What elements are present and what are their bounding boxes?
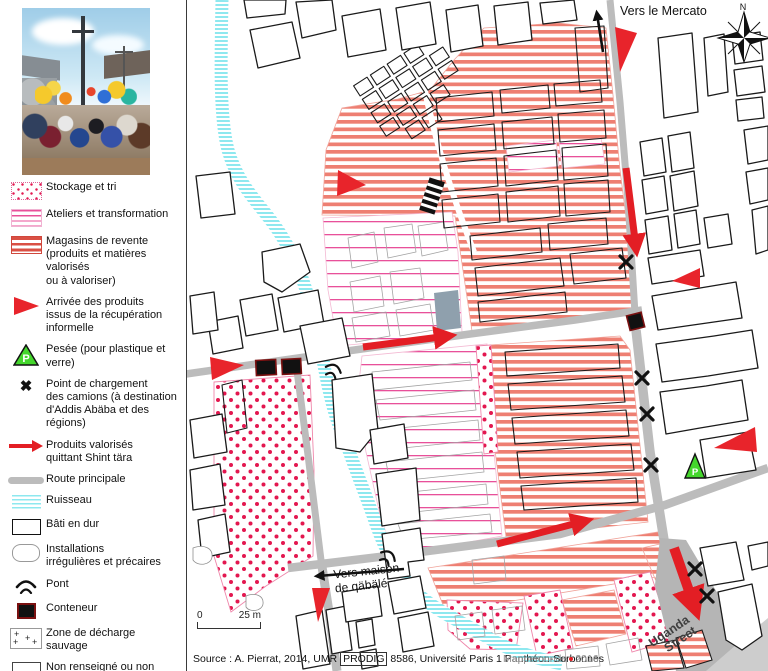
legend-label: Bâti en dur (46, 518, 184, 531)
legend-item-ateliers: Ateliers et transformation (6, 208, 184, 227)
container-swatch-icon (6, 602, 46, 619)
legend-label: Magasins de revente (produits et matière… (46, 235, 184, 288)
legend-item-ruisseau: Ruisseau (6, 494, 184, 510)
informal-installation (246, 594, 263, 610)
blank-swatch-icon (6, 661, 46, 671)
legend-item-bati: Bâti en dur (6, 518, 184, 535)
informal-swatch-icon (6, 543, 46, 562)
legend-item-arrivee: Arrivée des produits issus de la récupér… (6, 296, 184, 336)
legend-label: Ateliers et transformation (46, 208, 184, 221)
legend-label: Ruisseau (46, 494, 184, 507)
legend-label: Pont (46, 578, 184, 591)
informal-installation (193, 546, 212, 564)
bridge-icon (6, 578, 46, 594)
scale-bar-line (197, 622, 261, 629)
legend-label: Stockage et tri (46, 181, 184, 194)
svg-text:P: P (22, 353, 29, 365)
market-photo (22, 8, 150, 175)
scale-end: 25 m (239, 610, 261, 621)
ateliers-swatch-icon (6, 208, 46, 227)
legend-label: Produits valorisés quittant Shint tära (46, 439, 184, 465)
legend-label: Pesée (pour plastique et verre) (46, 343, 184, 369)
legend-item-pont: Pont (6, 578, 184, 594)
scale-bar: 0 25 m (197, 610, 261, 629)
to-mercato-label: Vers le Mercato (620, 4, 707, 18)
weighing-triangle-icon: P (6, 343, 46, 366)
building-swatch-icon (6, 518, 46, 535)
legend-item-installations: Installations irrégulières et précaires (6, 543, 184, 569)
legend-item-produits: Produits valorisés quittant Shint tära (6, 439, 184, 465)
dump-swatch-icon: ++ ++ (6, 627, 46, 649)
legend-label: Non renseigné ou non inclus dans le marc… (46, 661, 184, 671)
journal-credit: Mappemonde2016 (503, 653, 599, 665)
legend: Stockage et tri Ateliers et transformati… (6, 181, 184, 671)
legend-label: Point de chargement des camions (à desti… (46, 378, 184, 431)
credit-name: Mappemonde (503, 653, 567, 665)
legend-item-decharge: ++ ++ Zone de décharge sauvage (6, 627, 184, 653)
arrival-flag-icon (6, 296, 46, 315)
legend-item-conteneur: Conteneur (6, 602, 184, 619)
legend-item-pesee: P Pesée (pour plastique et verre) (6, 343, 184, 369)
legend-item-non-renseigne: Non renseigné ou non inclus dans le marc… (6, 661, 184, 671)
red-arrow-icon (6, 439, 46, 452)
legend-label: Arrivée des produits issus de la récupér… (46, 296, 184, 336)
stream-swatch-icon (6, 494, 46, 510)
source-prodig: PRODIG (340, 652, 387, 666)
stockage-swatch-icon (6, 181, 46, 200)
legend-label: Route principale (46, 473, 184, 486)
loading-x-icon: ✖ (6, 378, 46, 395)
legend-item-stockage: Stockage et tri (6, 181, 184, 200)
magasins-swatch-icon (6, 235, 46, 254)
weighing-letter: P (692, 467, 699, 478)
legend-item-magasins: Magasins de revente (produits et matière… (6, 235, 184, 288)
credit-year: 2016 (575, 653, 598, 665)
legend-item-chargement: ✖ Point de chargement des camions (à des… (6, 378, 184, 431)
legend-label: Zone de décharge sauvage (46, 627, 184, 653)
road-swatch-icon (6, 473, 46, 484)
legend-panel: Stockage et tri Ateliers et transformati… (0, 0, 186, 671)
panel-divider (186, 0, 187, 671)
restaurant-area (434, 290, 461, 331)
credit-dot-icon (569, 657, 573, 661)
figure: P N Vers le Mercato Vers maison de qäbäl… (0, 0, 768, 671)
photo-crowd (22, 105, 150, 158)
compass-north-label: N (740, 2, 747, 12)
legend-label: Installations irrégulières et précaires (46, 543, 184, 569)
legend-label: Conteneur (46, 602, 184, 615)
source-prefix: Source : A. Pierrat, 2014, UMR (193, 653, 340, 665)
legend-item-route: Route principale (6, 473, 184, 486)
scale-start: 0 (197, 610, 203, 621)
